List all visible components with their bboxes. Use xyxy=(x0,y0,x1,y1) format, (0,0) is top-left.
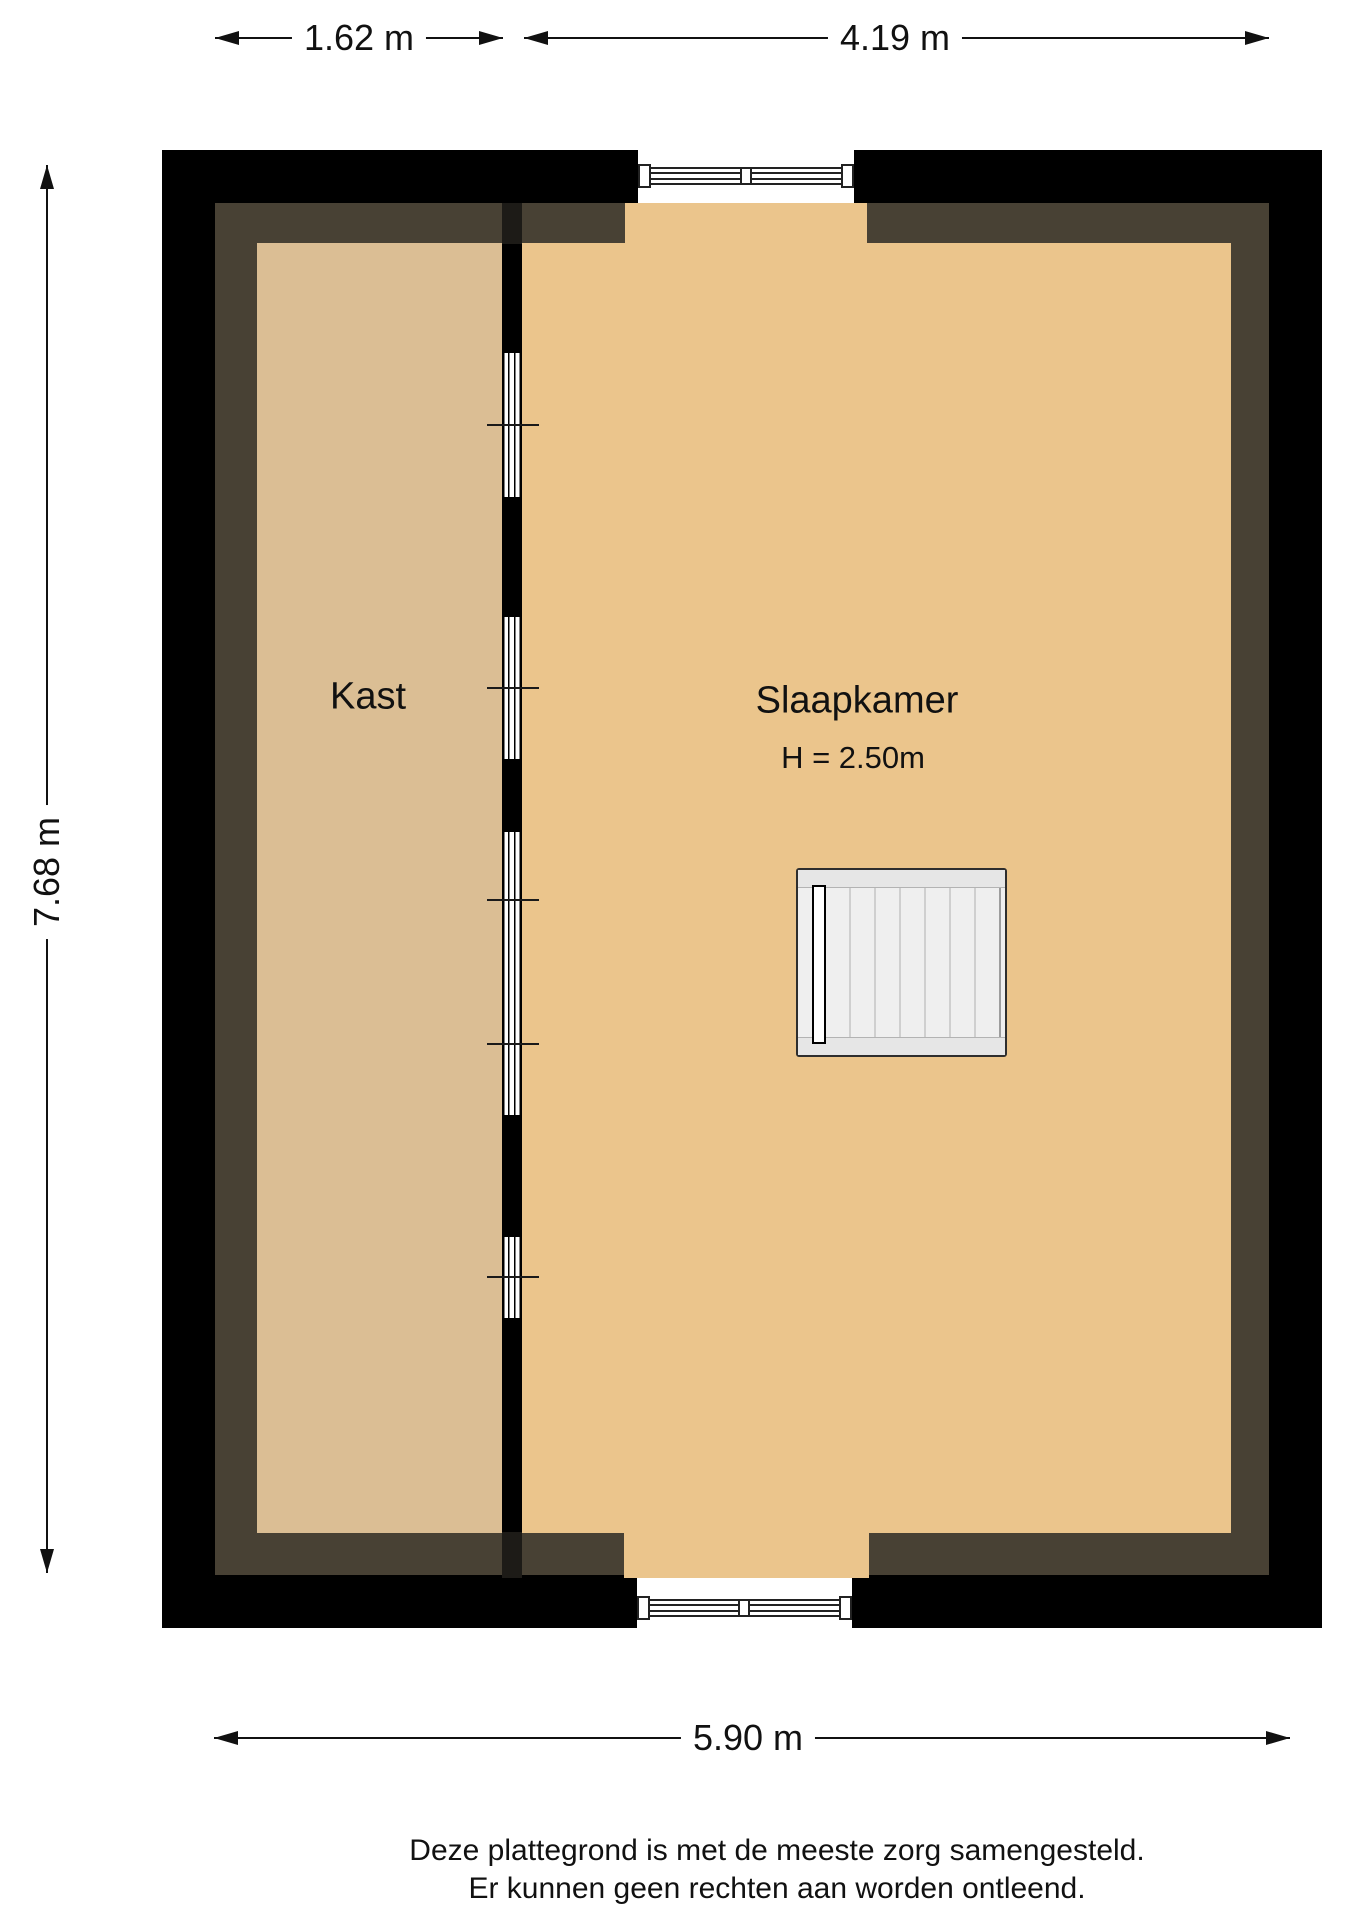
dimension-label-top-right: 4.19 m xyxy=(828,17,962,59)
bottom-window xyxy=(637,1596,852,1620)
panel-tick-mark xyxy=(487,1043,539,1045)
ceiling-height-label: H = 2.50m xyxy=(781,740,925,776)
stair-stringer xyxy=(999,888,1001,1037)
partition-wall-shadow-segment xyxy=(502,203,522,244)
bottom-opening-floor xyxy=(624,1532,869,1578)
dimension-label-left: 7.68 m xyxy=(26,805,68,939)
arrowhead-left-icon xyxy=(214,1731,238,1745)
stair-first-tread xyxy=(812,885,826,1044)
staircase xyxy=(796,868,1007,1057)
dimension-label-top-left: 1.62 m xyxy=(292,17,426,59)
kast-floor xyxy=(257,243,502,1533)
disclaimer-line-1: Deze plattegrond is met de meeste zorg s… xyxy=(327,1832,1227,1870)
arrowhead-left-icon xyxy=(524,31,548,45)
disclaimer: Deze plattegrond is met de meeste zorg s… xyxy=(327,1832,1227,1908)
top-opening-floor xyxy=(625,203,867,244)
disclaimer-line-2: Er kunnen geen rechten aan worden ontlee… xyxy=(327,1870,1227,1908)
window-end-cap xyxy=(637,1596,650,1620)
window-mullion xyxy=(740,167,752,185)
arrowhead-up-icon xyxy=(40,165,54,189)
stair-landing-edge xyxy=(798,1037,1005,1055)
arrowhead-left-icon xyxy=(215,31,239,45)
panel-tick-mark xyxy=(487,687,539,689)
room-label-slaapkamer: Slaapkamer xyxy=(756,680,959,723)
arrowhead-down-icon xyxy=(40,1549,54,1573)
stair-landing-edge xyxy=(798,870,1005,888)
window-end-cap xyxy=(638,164,651,188)
partition-glass-panel xyxy=(503,832,521,1115)
arrowhead-right-icon xyxy=(1266,1731,1290,1745)
top-window xyxy=(638,164,854,188)
partition-wall-shadow-segment xyxy=(502,1532,522,1578)
window-end-cap xyxy=(841,164,854,188)
dimension-label-bottom: 5.90 m xyxy=(681,1717,815,1759)
window-mullion xyxy=(738,1599,750,1617)
panel-tick-mark xyxy=(487,1276,539,1278)
arrowhead-right-icon xyxy=(479,31,503,45)
window-end-cap xyxy=(839,1596,852,1620)
panel-tick-mark xyxy=(487,899,539,901)
floorplan-page: 1.62 m 4.19 m 7.68 m xyxy=(0,0,1358,1920)
panel-tick-mark xyxy=(487,424,539,426)
stair-treads xyxy=(801,888,1002,1037)
room-label-kast: Kast xyxy=(330,676,406,719)
arrowhead-right-icon xyxy=(1245,31,1269,45)
